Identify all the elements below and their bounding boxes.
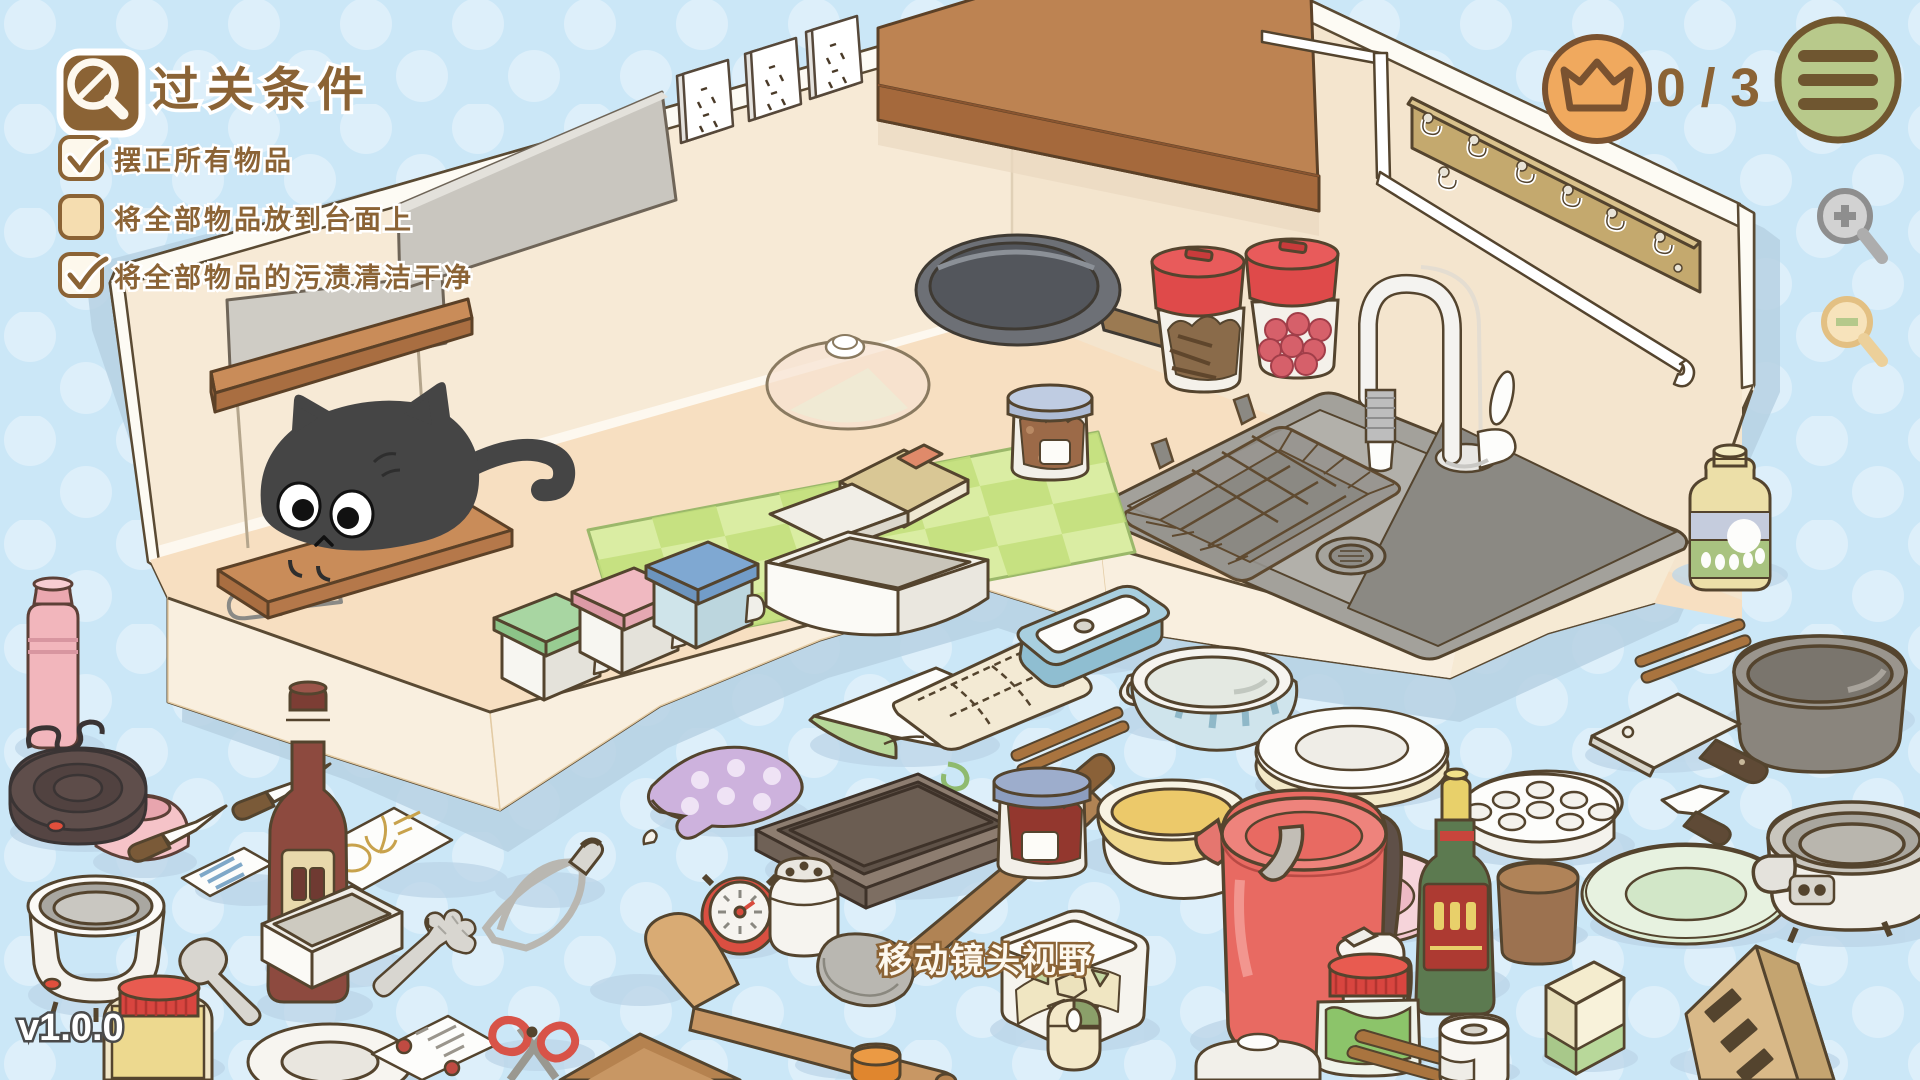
svg-text:v1.0.0: v1.0.0	[18, 1007, 124, 1049]
svg-text:过关条件: 过关条件	[152, 63, 372, 116]
svg-text:移动镜头视野: 移动镜头视野	[878, 942, 1094, 980]
svg-text:将全部物品放到台面上: 将全部物品放到台面上	[114, 204, 414, 235]
svg-text:摆正所有物品: 摆正所有物品	[114, 146, 294, 176]
svg-text:将全部物品的污渍清洁干净: 将全部物品的污渍清洁干净	[114, 262, 474, 293]
svg-text:0 / 3: 0 / 3	[1656, 58, 1760, 118]
